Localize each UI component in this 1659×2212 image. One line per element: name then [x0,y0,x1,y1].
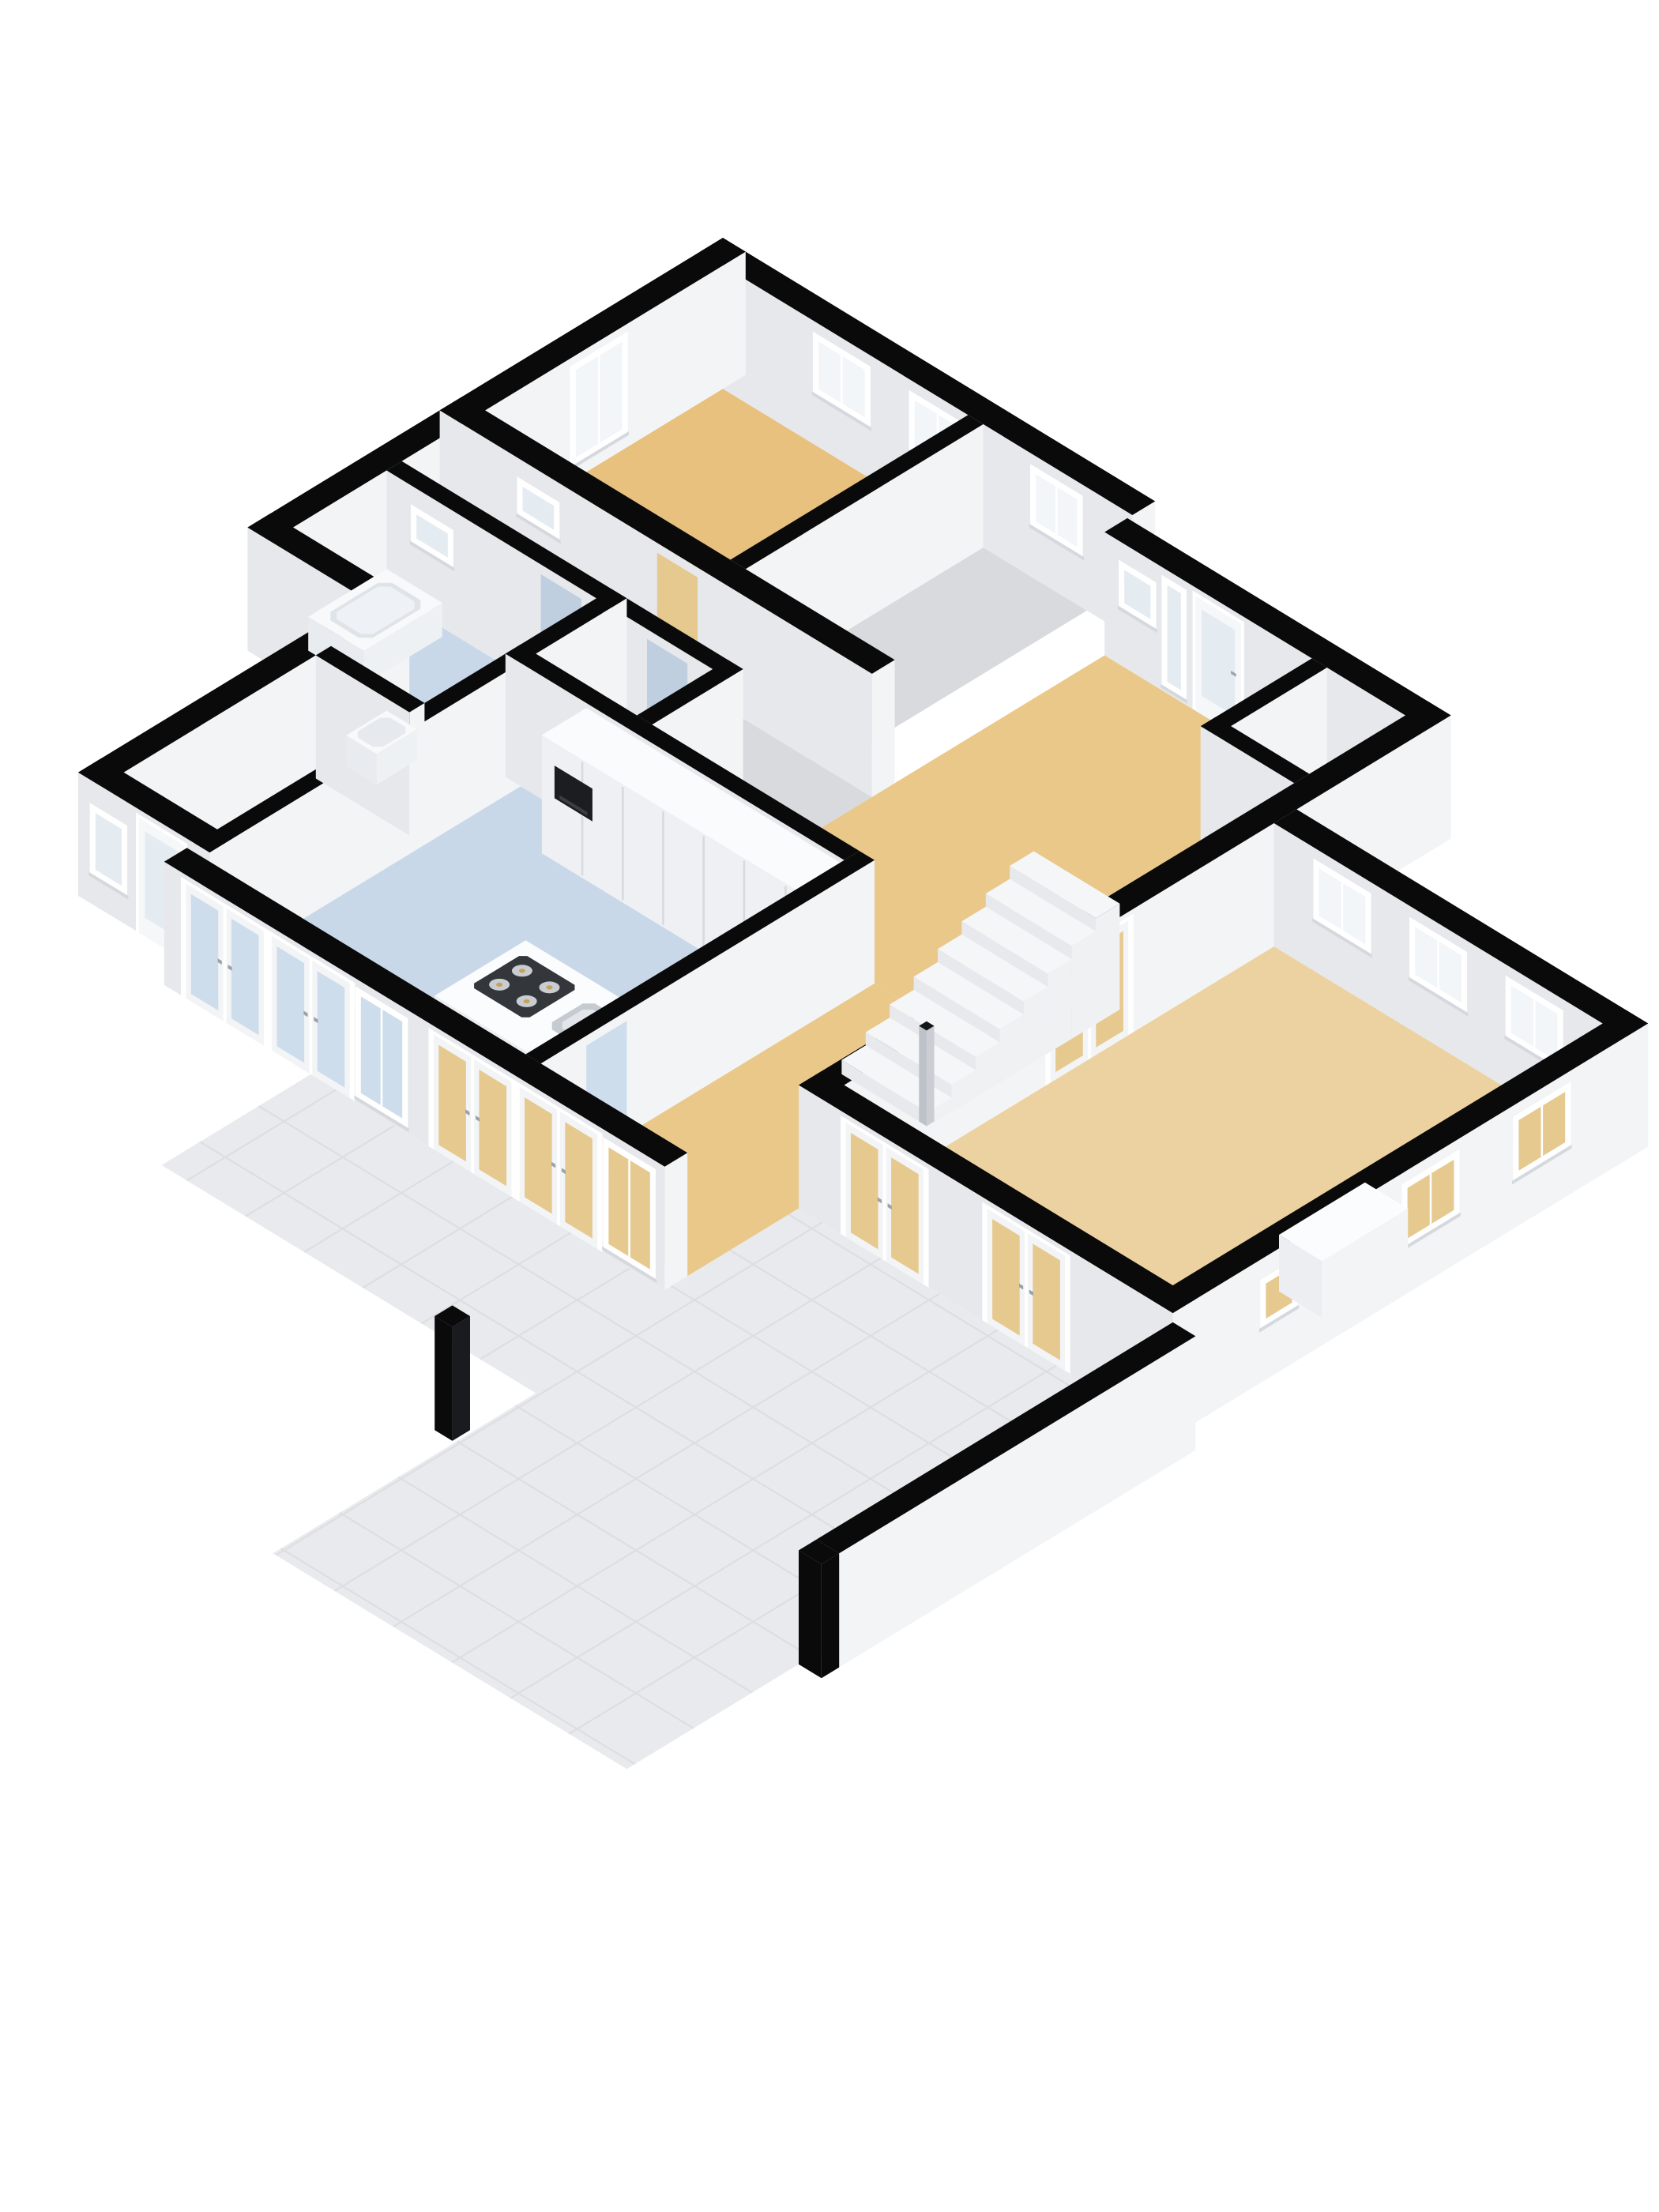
cut-post [434,1305,470,1441]
floorplan-svg [0,0,1659,2212]
floorplan-3d-render [0,0,1659,2212]
